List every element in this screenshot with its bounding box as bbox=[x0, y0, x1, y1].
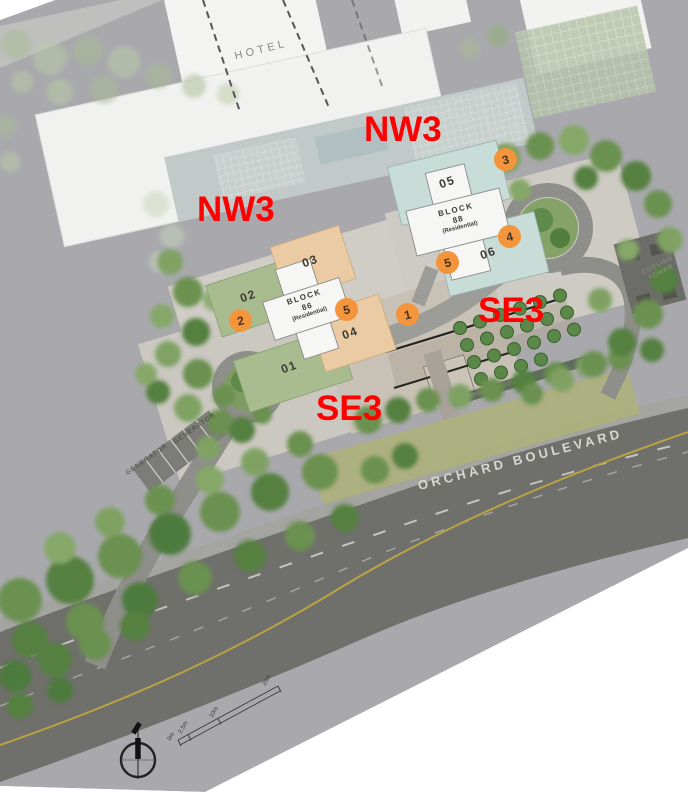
site-plan-screenshot: HOTEL ORCHARD BOULEVARD GENERATOR GENERA… bbox=[0, 0, 688, 792]
facing-label-nw3-right: NW3 bbox=[364, 112, 442, 147]
facing-label-se3-right: SE3 bbox=[478, 293, 544, 328]
facing-label-nw3-left: NW3 bbox=[197, 192, 275, 227]
facing-label-se3-left: SE3 bbox=[316, 391, 382, 426]
